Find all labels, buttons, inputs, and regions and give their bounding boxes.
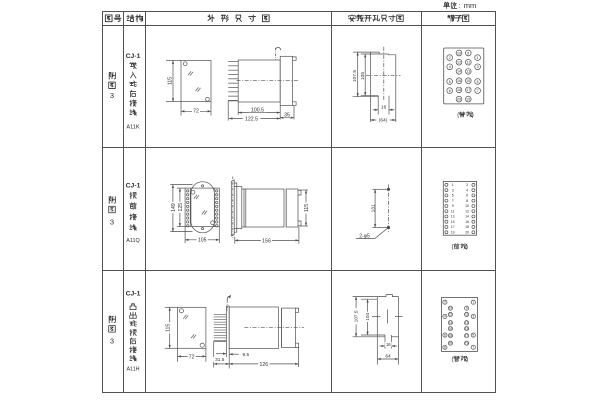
svg-text:(64): (64) <box>379 118 388 124</box>
svg-text:105: 105 <box>360 72 366 80</box>
svg-text:2: 2 <box>444 300 446 304</box>
svg-text:9.5: 9.5 <box>242 352 249 358</box>
svg-text:18: 18 <box>465 225 469 229</box>
svg-text:35: 35 <box>284 112 290 118</box>
svg-text:(: ( <box>452 357 454 363</box>
svg-text:6: 6 <box>449 80 451 84</box>
svg-text:6: 6 <box>466 194 468 198</box>
svg-text:12: 12 <box>457 61 461 65</box>
svg-text:20: 20 <box>449 341 453 345</box>
svg-text:122.5: 122.5 <box>245 116 258 122</box>
svg-text:4: 4 <box>466 188 468 192</box>
svg-text:16: 16 <box>465 220 469 224</box>
svg-text:4: 4 <box>444 315 446 319</box>
svg-text:8: 8 <box>449 89 451 93</box>
svg-text:8: 8 <box>466 199 468 203</box>
svg-text:5: 5 <box>477 80 479 84</box>
svg-text:1: 1 <box>452 183 454 187</box>
svg-text:2: 2 <box>449 56 451 60</box>
svg-text:CJ-1: CJ-1 <box>126 291 141 298</box>
svg-text:13: 13 <box>451 215 455 219</box>
svg-text:17: 17 <box>465 334 469 338</box>
svg-text:15: 15 <box>466 79 470 83</box>
svg-text:100.5: 100.5 <box>251 107 264 113</box>
svg-text:(: ( <box>452 245 454 251</box>
svg-text:16: 16 <box>449 327 453 331</box>
svg-text:A11H: A11H <box>126 367 139 373</box>
svg-text:125: 125 <box>178 203 184 212</box>
svg-text:72: 72 <box>193 108 199 114</box>
svg-text:115: 115 <box>165 324 171 332</box>
svg-text:11: 11 <box>451 209 455 213</box>
svg-text:A11K: A11K <box>126 125 140 131</box>
svg-text:11: 11 <box>466 61 470 65</box>
svg-text:7: 7 <box>472 345 474 349</box>
svg-text:9: 9 <box>467 51 469 55</box>
svg-text:64: 64 <box>385 354 391 360</box>
svg-text:107.5: 107.5 <box>352 70 358 82</box>
svg-text:6: 6 <box>444 333 446 337</box>
svg-text:115: 115 <box>167 77 173 85</box>
svg-text:CJ-1: CJ-1 <box>126 53 141 60</box>
svg-text:3: 3 <box>472 315 474 319</box>
svg-text:9: 9 <box>466 306 468 310</box>
svg-text:104: 104 <box>365 312 371 320</box>
svg-text:7: 7 <box>452 199 454 203</box>
svg-text:3: 3 <box>452 188 454 192</box>
svg-text:19: 19 <box>451 231 455 235</box>
svg-text:3: 3 <box>110 91 114 100</box>
svg-text:115: 115 <box>304 204 310 212</box>
svg-text:14: 14 <box>457 70 461 74</box>
svg-text:mm: mm <box>464 1 477 10</box>
svg-text:5: 5 <box>452 194 454 198</box>
svg-text:2: 2 <box>466 183 468 187</box>
svg-text:126: 126 <box>259 362 268 368</box>
svg-text:13: 13 <box>466 70 470 74</box>
svg-text:CJ-1: CJ-1 <box>126 182 141 189</box>
svg-text:105: 105 <box>198 238 207 244</box>
svg-text:11: 11 <box>465 313 469 317</box>
svg-text:10: 10 <box>465 204 469 208</box>
svg-text:7: 7 <box>477 89 479 93</box>
svg-text:15: 15 <box>465 327 469 331</box>
svg-text:18: 18 <box>457 88 461 92</box>
svg-text:107.5: 107.5 <box>354 310 360 322</box>
svg-text:156: 156 <box>262 238 271 244</box>
svg-text:20: 20 <box>465 231 469 235</box>
svg-text:4: 4 <box>449 65 451 69</box>
svg-text:131: 131 <box>371 204 377 212</box>
svg-text:12: 12 <box>449 313 453 317</box>
svg-text:A11Q: A11Q <box>126 238 139 244</box>
svg-text:31.5: 31.5 <box>215 357 225 363</box>
svg-text:): ) <box>466 245 468 251</box>
svg-text:14: 14 <box>449 321 453 325</box>
svg-text::: : <box>459 3 461 10</box>
svg-text:1: 1 <box>472 300 474 304</box>
svg-text:17: 17 <box>466 88 470 92</box>
svg-text:10: 10 <box>449 306 453 310</box>
svg-text:149: 149 <box>171 203 177 212</box>
svg-text:14: 14 <box>465 215 469 219</box>
svg-text:3: 3 <box>110 217 114 226</box>
svg-text:16: 16 <box>381 105 387 111</box>
svg-text:19: 19 <box>465 341 469 345</box>
svg-text:17: 17 <box>451 225 455 229</box>
svg-text:): ) <box>472 113 474 119</box>
svg-text:3: 3 <box>477 65 479 69</box>
svg-text:72: 72 <box>189 354 195 360</box>
svg-text:1: 1 <box>477 56 479 60</box>
svg-text:16: 16 <box>457 79 461 83</box>
svg-text:2-φ5: 2-φ5 <box>359 233 370 239</box>
svg-text:19: 19 <box>466 97 470 101</box>
svg-text:20: 20 <box>457 97 461 101</box>
svg-text:3: 3 <box>110 337 114 346</box>
svg-text:(: ( <box>457 113 459 119</box>
svg-text:8: 8 <box>444 345 446 349</box>
svg-text:5: 5 <box>472 333 474 337</box>
svg-text:16: 16 <box>386 342 391 347</box>
svg-text:18: 18 <box>449 334 453 338</box>
svg-text:9: 9 <box>452 204 454 208</box>
svg-text:): ) <box>466 357 468 363</box>
svg-text:13: 13 <box>465 321 469 325</box>
svg-text:10: 10 <box>457 51 461 55</box>
svg-text:15: 15 <box>451 220 455 224</box>
svg-text:12: 12 <box>465 209 469 213</box>
